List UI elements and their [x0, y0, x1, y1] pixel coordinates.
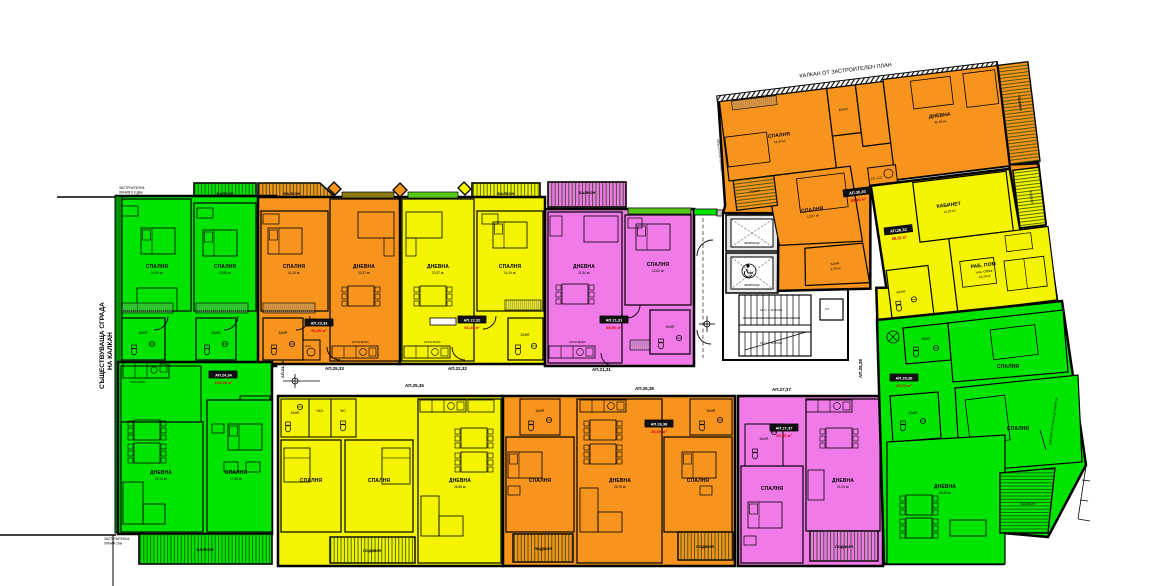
svg-text:КУХН.БОКС: КУХН.БОКС: [569, 340, 587, 344]
svg-text:АП.27,37: АП.27,37: [772, 387, 791, 392]
svg-text:14,19 м²: 14,19 м²: [504, 271, 516, 275]
svg-text:ДНЕВНА: ДНЕВНА: [609, 478, 631, 484]
svg-text:АП.21,31: АП.21,31: [606, 318, 624, 323]
svg-text:КУХН.БОКС: КУХН.БОКС: [424, 340, 442, 344]
svg-text:БАНЯ: БАНЯ: [212, 331, 221, 335]
svg-text:БАЛКОН: БАЛКОН: [284, 191, 301, 196]
svg-text:ЗАСТРОИТЕЛНА: ЗАСТРОИТЕЛНА: [104, 537, 130, 541]
svg-text:СПАЛНЯ: СПАЛНЯ: [214, 264, 236, 270]
svg-text:АП.28,38: АП.28,38: [896, 376, 914, 381]
svg-text:АП.24,34: АП.24,34: [280, 360, 285, 378]
svg-text:56,45 м²: 56,45 м²: [311, 328, 327, 333]
svg-text:23,37 м²: 23,37 м²: [358, 271, 370, 275]
svg-text:БАНЯ: БАНЯ: [291, 411, 300, 415]
svg-text:АП.24,34: АП.24,34: [215, 373, 233, 378]
svg-text:ЛИНИЯ 10м: ЛИНИЯ 10м: [104, 542, 122, 546]
svg-text:14,90 м²: 14,90 м²: [151, 271, 163, 275]
svg-text:СПАЛНЯ: СПАЛНЯ: [225, 470, 247, 476]
svg-text:26,70 м²: 26,70 м²: [155, 477, 167, 481]
svg-text:АП.23,33: АП.23,33: [311, 321, 329, 326]
svg-text:103,08 м²: 103,08 м²: [215, 380, 233, 385]
svg-text:АП.25,35: АП.25,35: [405, 383, 424, 388]
svg-text:ОХЛ.: ОХЛ.: [305, 344, 312, 348]
svg-text:СПАЛНЯ: СПАЛНЯ: [300, 478, 322, 484]
svg-text:СПАЛНЯ: СПАЛНЯ: [1007, 426, 1029, 432]
svg-text:СПАЛНЯ: СПАЛНЯ: [283, 264, 305, 270]
svg-text:ЛОДЖИЯ: ЛОДЖИЯ: [835, 544, 853, 549]
svg-text:НА КАЛКАН: НА КАЛКАН: [107, 332, 114, 370]
svg-text:WC: WC: [340, 409, 346, 413]
svg-text:ЛОДЖИЯ: ЛОДЖИЯ: [534, 546, 552, 551]
svg-text:56,45 м²: 56,45 м²: [464, 325, 480, 330]
svg-text:АП.22,32: АП.22,32: [464, 318, 482, 323]
svg-text:БАНЯ: БАНЯ: [536, 409, 545, 413]
svg-text:69,72 м²: 69,72 м²: [896, 383, 912, 388]
svg-text:ЛОДЖИЯ: ЛОДЖИЯ: [363, 548, 381, 553]
svg-text:СПАЛНЯ: СПАЛНЯ: [499, 264, 521, 270]
svg-text:АП.26,38: АП.26,38: [651, 422, 669, 427]
svg-text:БАНЯ: БАНЯ: [909, 411, 918, 415]
svg-text:асансьор: асансьор: [744, 241, 759, 245]
svg-text:БАЛКОН: БАЛКОН: [579, 190, 596, 195]
svg-text:ДНЕВНА: ДНЕВНА: [150, 470, 172, 476]
svg-text:АП.28,38: АП.28,38: [858, 359, 863, 378]
svg-text:БАНЯ: БАНЯ: [760, 437, 769, 441]
svg-text:55,95 м²: 55,95 м²: [776, 433, 792, 438]
svg-text:БАНЯ: БАНЯ: [666, 325, 675, 329]
svg-text:БАНЯ: БАНЯ: [279, 331, 288, 335]
svg-text:26,58 м²: 26,58 м²: [454, 485, 466, 489]
svg-text:21,04 м²: 21,04 м²: [837, 485, 849, 489]
svg-text:БАЛКОН: БАЛКОН: [498, 191, 515, 196]
svg-text:АП.21,31: АП.21,31: [592, 367, 611, 372]
svg-text:СПАЛНЯ: СПАЛНЯ: [997, 364, 1019, 370]
svg-text:БАЛКОН: БАЛКОН: [1021, 502, 1036, 506]
svg-text:БАНЯ: БАНЯ: [139, 331, 148, 335]
svg-text:СПАЛНЯ: СПАЛНЯ: [687, 478, 709, 484]
svg-text:СПАЛНЯ: СПАЛНЯ: [761, 486, 783, 492]
svg-text:БАЛКОН: БАЛКОН: [197, 547, 214, 552]
svg-text:18 ст × 15,83/30: 18 ст × 15,83/30: [760, 308, 782, 312]
svg-text:АП.25,33: АП.25,33: [325, 366, 344, 371]
svg-text:13,85 м²: 13,85 м²: [219, 271, 231, 275]
svg-text:СПАЛНЯ: СПАЛНЯ: [647, 262, 669, 268]
svg-text:ОКЛ.: ОКЛ.: [316, 409, 323, 413]
svg-text:ДНЕВНА: ДНЕВНА: [449, 478, 471, 484]
svg-text:СПАЛНЯ: СПАЛНЯ: [368, 478, 390, 484]
svg-text:БАНЯ: БАНЯ: [707, 409, 716, 413]
svg-text:17,36 м²: 17,36 м²: [230, 477, 242, 481]
svg-text:КУХН.БОКС: КУХН.БОКС: [130, 380, 146, 384]
svg-text:ДНЕВНА: ДНЕВНА: [353, 264, 375, 270]
svg-text:ЛИНИЯ 6,0 дВм: ЛИНИЯ 6,0 дВм: [119, 191, 143, 195]
svg-text:СПАЛНЯ: СПАЛНЯ: [529, 478, 551, 484]
svg-text:СЪЩЕСТВУВАЩА СГРАДА: СЪЩЕСТВУВАЩА СГРАДА: [99, 302, 106, 389]
svg-text:БАНЯ: БАНЯ: [922, 337, 931, 341]
svg-text:АП.27,37: АП.27,37: [776, 426, 794, 431]
svg-text:26,43 м²: 26,43 м²: [939, 491, 951, 495]
svg-text:ОТ.: ОТ.: [825, 307, 830, 311]
svg-text:26,78 м²: 26,78 м²: [614, 485, 626, 489]
svg-text:55,90 м²: 55,90 м²: [606, 325, 622, 330]
svg-text:23,37 м²: 23,37 м²: [432, 271, 444, 275]
svg-text:АП.22,32: АП.22,32: [448, 366, 467, 371]
svg-text:14,19 м²: 14,19 м²: [288, 271, 300, 275]
svg-text:14,62 м²: 14,62 м²: [652, 269, 664, 273]
svg-text:КУХН.БОКС: КУХН.БОКС: [352, 340, 370, 344]
svg-text:21,84 м²: 21,84 м²: [578, 271, 590, 275]
svg-text:АП.26,38: АП.26,38: [635, 386, 654, 391]
svg-text:ЗАСТРОИТЕЛНА: ЗАСТРОИТЕЛНА: [119, 186, 145, 190]
svg-text:асансьор: асансьор: [744, 283, 759, 287]
svg-text:ДНЕВНА: ДНЕВНА: [832, 478, 854, 484]
svg-text:ДНЕВНА: ДНЕВНА: [934, 484, 956, 490]
svg-text:ДНЕВНА: ДНЕВНА: [427, 264, 449, 270]
svg-text:ЛОДЖИЯ: ЛОДЖИЯ: [696, 544, 714, 549]
svg-text:ДНЕВНА: ДНЕВНА: [573, 264, 595, 270]
svg-text:СПАЛНЯ: СПАЛНЯ: [146, 264, 168, 270]
svg-text:БАНЯ: БАНЯ: [521, 333, 530, 337]
svg-text:86,60 м²: 86,60 м²: [651, 429, 667, 434]
